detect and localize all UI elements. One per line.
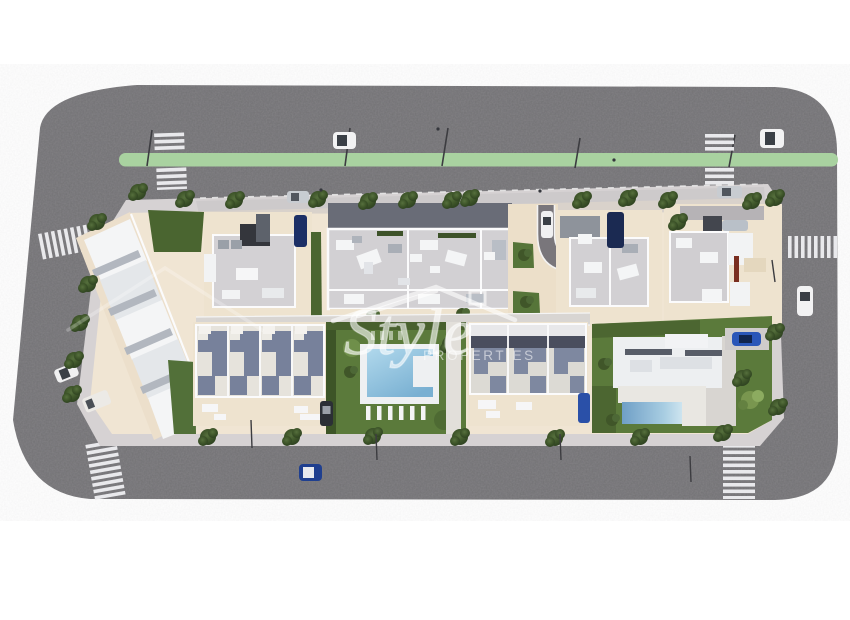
- svg-text:PROPERTIES: PROPERTIES: [423, 348, 536, 363]
